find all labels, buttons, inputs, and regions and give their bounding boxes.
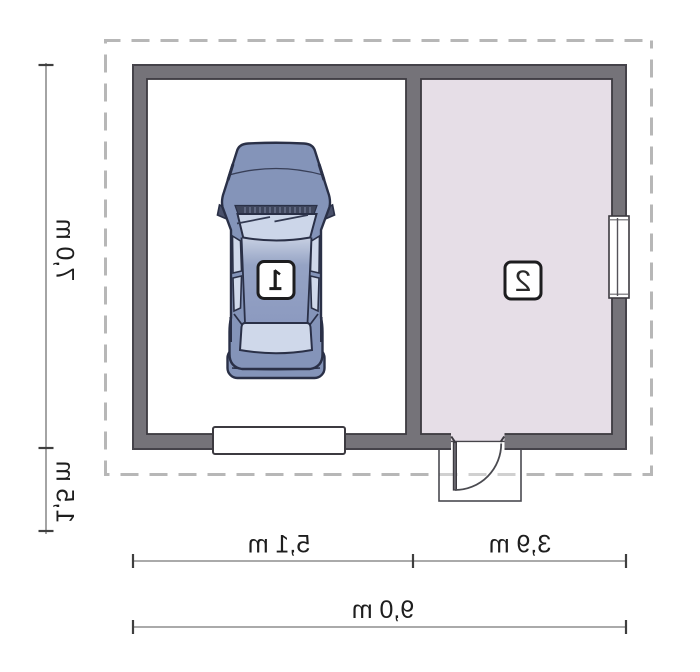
svg-text:3,9 m: 3,9 m: [489, 531, 552, 559]
svg-text:2: 2: [515, 265, 532, 298]
svg-text:5,1 m: 5,1 m: [248, 531, 311, 559]
svg-text:9,0 m: 9,0 m: [352, 596, 415, 624]
svg-text:1,5 m: 1,5 m: [51, 461, 79, 524]
svg-text:7,0 m: 7,0 m: [51, 219, 79, 282]
